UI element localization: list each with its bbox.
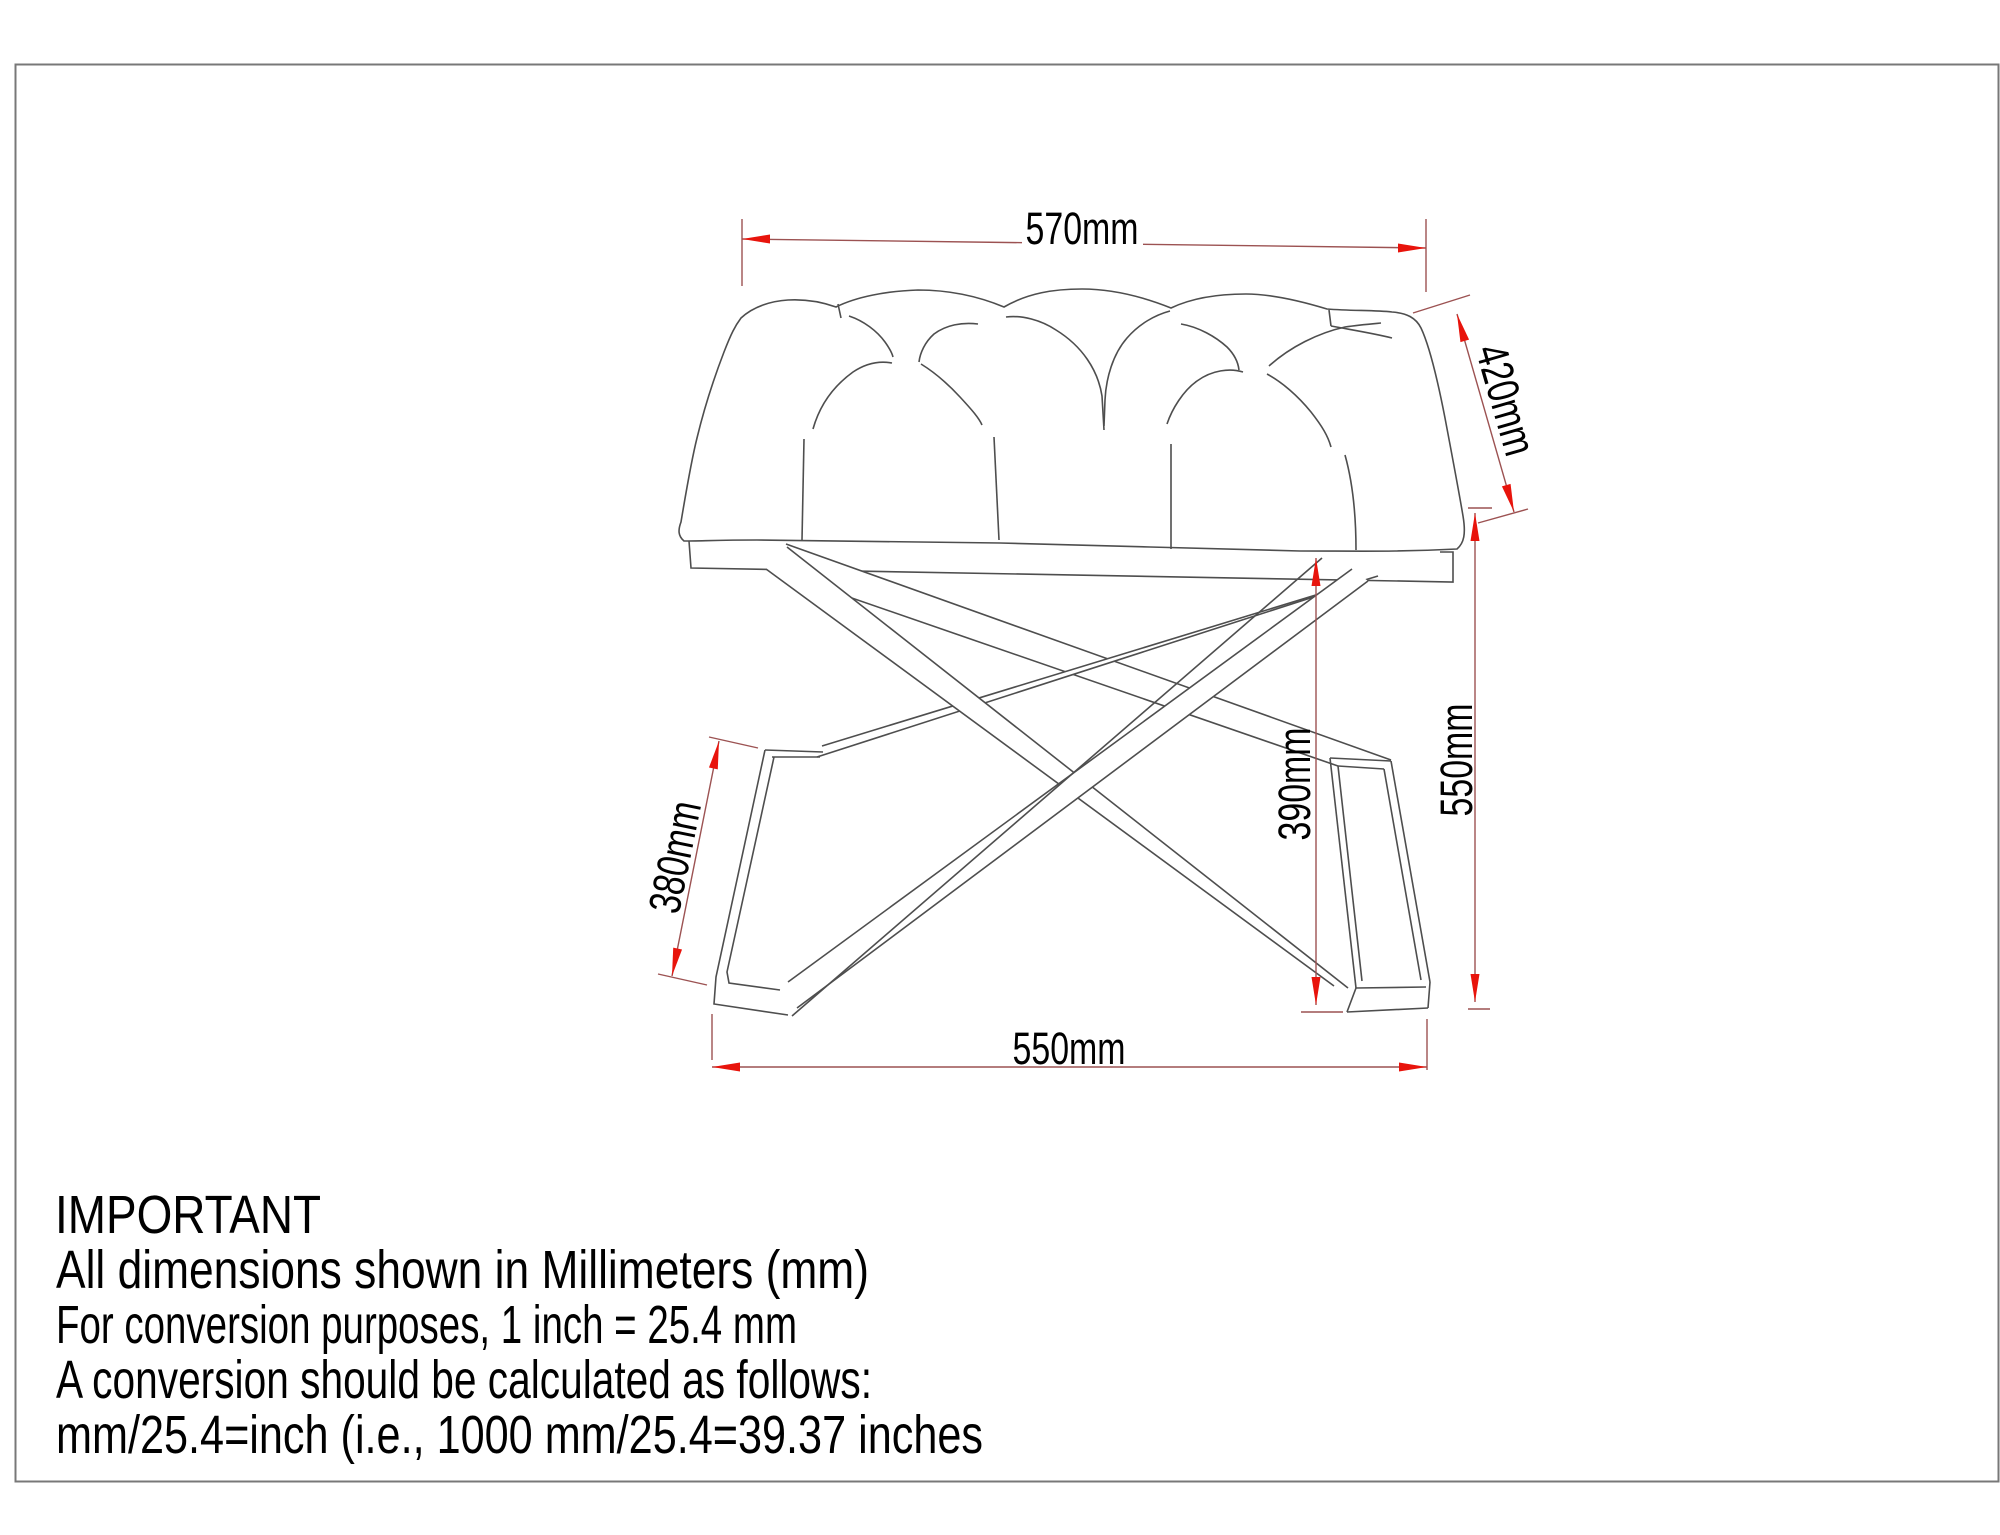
svg-text:550mm: 550mm [1013,1023,1126,1074]
svg-text:A conversion should be calcula: A conversion should be calculated as fol… [56,1350,872,1410]
svg-text:390mm: 390mm [1269,728,1320,841]
svg-text:All dimensions shown in Millim: All dimensions shown in Millimeters (mm) [56,1240,869,1300]
svg-text:570mm: 570mm [1026,203,1139,254]
svg-text:IMPORTANT: IMPORTANT [55,1185,321,1245]
svg-text:mm/25.4=inch (i.e., 1000 mm/25: mm/25.4=inch (i.e., 1000 mm/25.4=39.37 i… [56,1405,983,1465]
svg-text:550mm: 550mm [1431,704,1482,817]
svg-text:For conversion purposes, 1 inc: For conversion purposes, 1 inch = 25.4 m… [56,1295,797,1355]
